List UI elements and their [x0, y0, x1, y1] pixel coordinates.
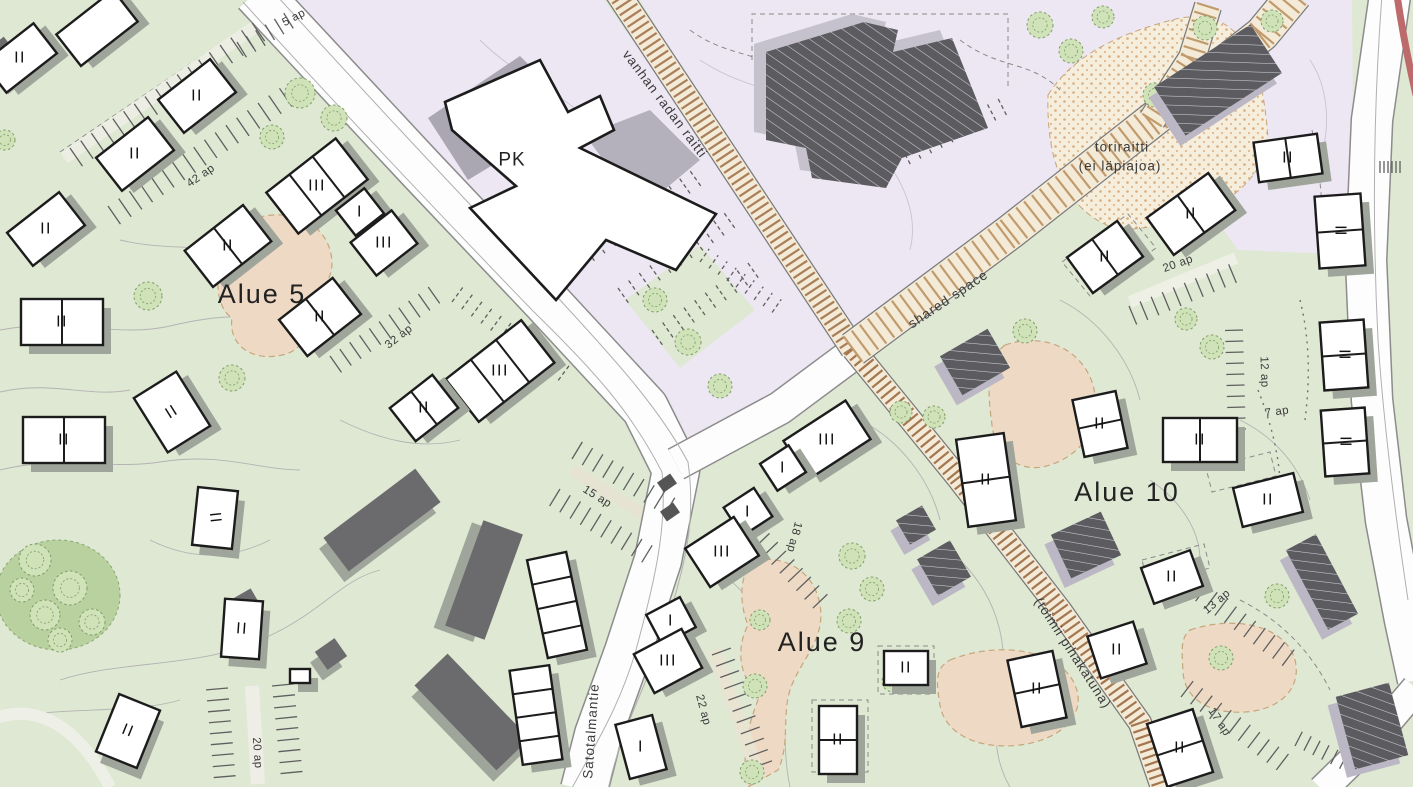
tree-icon [19, 544, 51, 576]
storey-label: II [129, 146, 141, 163]
storey-label: II [222, 238, 234, 255]
storey-label: II [1099, 249, 1111, 266]
storey-label: II [235, 620, 248, 638]
parking-stall-tick [1226, 352, 1244, 353]
storey-label: II [1262, 492, 1274, 509]
label-alue-10: Alue 10 [1074, 477, 1180, 507]
tree-icon [643, 288, 667, 312]
parking-stall-tick [1226, 363, 1244, 364]
storey-label: II [900, 660, 912, 677]
planned-building: II [1320, 319, 1377, 399]
tree-icon [740, 760, 764, 784]
tree-icon [48, 628, 72, 652]
storey-label: II [191, 88, 203, 105]
planned-building: II [819, 706, 865, 783]
tree-icon [675, 329, 701, 355]
parking-stall-tick [1227, 407, 1245, 408]
parking-stall-tick [1225, 330, 1243, 331]
tree-icon [1175, 308, 1197, 330]
storey-label: II [1337, 436, 1354, 448]
storey-label: II [1094, 416, 1106, 433]
tree-icon [79, 609, 105, 635]
tree-icon [1013, 319, 1037, 343]
tree-icon [53, 571, 87, 605]
storey-label: III [375, 235, 393, 252]
storey-label: II [1336, 349, 1353, 361]
tree-icon [0, 130, 15, 150]
planned-building: II [220, 599, 271, 669]
tree-icon [860, 577, 884, 601]
label-ei-lapiajoa: (ei läpiajoa) [1079, 159, 1162, 174]
label-alue-5: Alue 5 [218, 279, 307, 309]
label-toriraitti: toriraitti [1095, 140, 1149, 155]
storey-label: I [357, 204, 363, 221]
storey-label: II [314, 309, 326, 326]
parking-stall-tick [1225, 341, 1243, 342]
storey-label: II [1166, 569, 1178, 586]
storey-label: II [1194, 432, 1206, 449]
parking-stall-tick [1227, 396, 1245, 397]
tree-icon [1193, 16, 1217, 40]
storey-label: I [780, 460, 786, 477]
tree-icon [1200, 335, 1224, 359]
storey-label: II [58, 432, 70, 449]
aisle-20ap-west [252, 686, 258, 784]
storey-label: I [745, 504, 751, 521]
storey-label: II [56, 314, 68, 331]
storey-label: II [1282, 150, 1294, 167]
label-pk-building: PK [498, 150, 525, 171]
storey-label: II [1174, 740, 1186, 757]
storey-label: II [206, 511, 224, 525]
storey-label: III [818, 432, 836, 449]
tree-icon [1027, 12, 1053, 38]
storey-label: II [14, 50, 26, 67]
storey-label: I [668, 613, 674, 630]
tree-icon [743, 674, 767, 698]
planned-building: II [23, 417, 113, 472]
tree-icon [134, 282, 162, 310]
tree-icon [1261, 10, 1283, 32]
building-footprint [290, 669, 310, 683]
label-12-ap: 12 ap [1257, 356, 1270, 388]
tree-icon [10, 578, 34, 602]
label-alue-9: Alue 9 [778, 627, 867, 657]
planned-building: II [1315, 193, 1375, 278]
storey-label: II [1031, 681, 1043, 698]
storey-label: III [308, 178, 326, 195]
tree-icon [839, 543, 865, 569]
storey-label: II [832, 732, 844, 749]
yard-alue10-south [1182, 623, 1296, 712]
tree-icon [708, 374, 732, 398]
tree-icon [285, 78, 315, 108]
storey-label: III [659, 653, 677, 670]
tree-icon [923, 406, 945, 428]
tree-icon [750, 610, 770, 630]
storey-label: II [418, 400, 430, 417]
tree-icon [1265, 584, 1289, 608]
site-plan-viewport: IIIIIIIIIIIIIIIIIIIIIIIIIIIIIIIIIIIIIIII… [0, 0, 1413, 787]
tree-icon [1092, 6, 1114, 28]
parking-stall-tick [1227, 385, 1245, 386]
tree-icon [260, 125, 284, 149]
tree-icon [1059, 39, 1083, 63]
parking-stall-tick [1226, 374, 1244, 375]
storey-label: II [980, 472, 992, 489]
site-plan-map: IIIIIIIIIIIIIIIIIIIIIIIIIIIIIIIIIIIIIIII… [0, 0, 1413, 787]
storey-label: III [713, 544, 731, 561]
planned-building: II [1321, 407, 1378, 485]
storey-label: II [40, 221, 52, 238]
tree-icon [890, 401, 912, 423]
tree-icon [1209, 646, 1233, 670]
planned-building: II [1163, 418, 1245, 471]
tree-icon [30, 600, 60, 630]
storey-label: II [1185, 206, 1197, 223]
storey-label: II [1111, 642, 1123, 659]
planned-building: II [21, 299, 111, 354]
tree-icon [321, 105, 347, 131]
storey-label: III [491, 363, 509, 380]
storey-label: I [638, 739, 644, 756]
tree-icon [219, 365, 245, 391]
storey-label: II [1332, 225, 1349, 237]
label-20-ap-west: 20 ap [250, 737, 264, 769]
